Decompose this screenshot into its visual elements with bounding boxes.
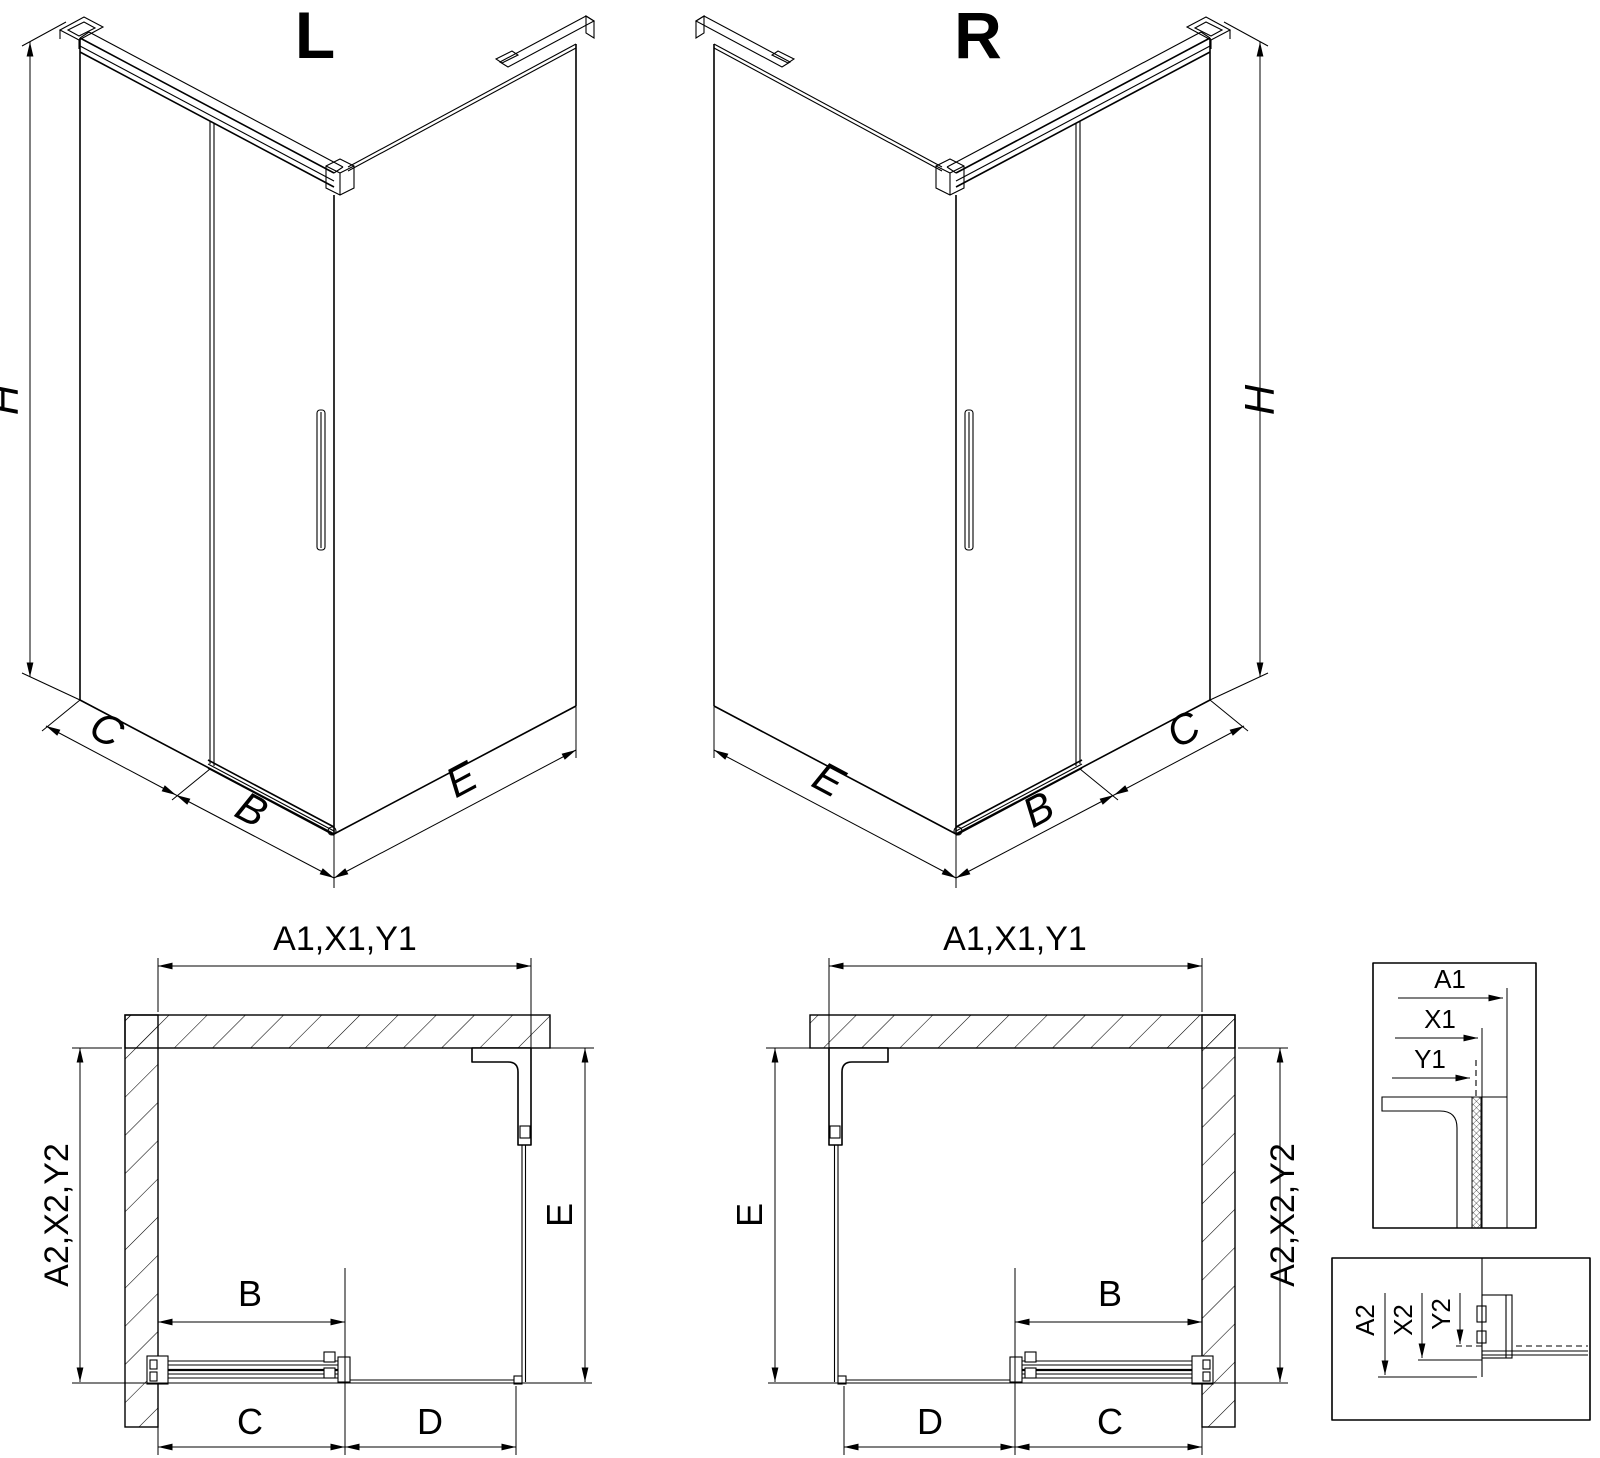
detail-label-y2: Y2: [1426, 1298, 1456, 1330]
dim-label-c: C: [1097, 1401, 1123, 1442]
dim-label-a1x1y1: A1,X1,Y1: [943, 920, 1087, 958]
iso-left-dim-e: E: [334, 706, 576, 878]
iso-view-left: L H: [0, 0, 594, 888]
plan-view-left: A1,X1,Y1 A2,X2,Y2 E B C D: [38, 920, 594, 1455]
glass-walls-left-view: [80, 44, 576, 834]
dim-label-e: E: [805, 752, 853, 807]
detail-view-top: A1 X1 Y1: [1373, 963, 1536, 1228]
dim-label-b: B: [1015, 782, 1062, 837]
plan-right-dim-e: E: [729, 1048, 826, 1382]
plan-left-dim-e: E: [534, 1048, 594, 1382]
glass-section: [1472, 1097, 1481, 1228]
iso-left-dim-b: B: [176, 782, 334, 888]
wall-bracket-right: [496, 16, 594, 67]
dim-label-c: C: [237, 1401, 263, 1442]
dim-label-d: D: [417, 1401, 443, 1442]
door-rail-assembly: [72, 1352, 592, 1384]
dim-label-h: H: [0, 384, 27, 415]
glass-walls-right-view: [714, 44, 1210, 834]
detail-view-bottom: A2 X2 Y2: [1332, 1258, 1590, 1420]
corner-cap: [936, 159, 964, 195]
plan-left-dim-a2: A2,X2,Y2: [38, 1048, 122, 1382]
detail-label-x1: X1: [1424, 1004, 1456, 1034]
dim-label-b: B: [1098, 1273, 1122, 1314]
dim-label-b: B: [228, 782, 275, 837]
door-handle: [317, 410, 325, 550]
corner-cap: [326, 159, 354, 195]
technical-drawing: L H: [0, 0, 1600, 1458]
plan-right-dim-a2: A2,X2,Y2: [1238, 1048, 1302, 1382]
iso-left-title: L: [295, 0, 335, 72]
iso-right-dim-e: E: [714, 706, 956, 878]
dim-label-b: B: [238, 1273, 262, 1314]
dim-label-a1x1y1: A1,X1,Y1: [273, 920, 417, 958]
wall-top: [810, 1015, 1235, 1048]
door-rail-assembly: [768, 1352, 1288, 1384]
wall-bracket-left: [696, 16, 794, 67]
corner-profile: [829, 1048, 888, 1382]
wall-bracket-left: [60, 17, 103, 49]
door-handle: [965, 410, 973, 550]
dim-label-d: D: [917, 1401, 943, 1442]
plan-view-right: A1,X1,Y1 A2,X2,Y2 E B D C: [729, 920, 1302, 1455]
dim-label-a2x2y2: A2,X2,Y2: [38, 1143, 76, 1287]
corner-profile: [472, 1048, 531, 1382]
dim-label-e: E: [729, 1203, 770, 1227]
detail-label-y1: Y1: [1414, 1044, 1446, 1074]
iso-left-dim-height: H: [0, 22, 80, 700]
detail-label-a1: A1: [1434, 964, 1466, 994]
plan-right-dim-dc: D C: [844, 1386, 1202, 1455]
dim-label-h: H: [1236, 384, 1283, 415]
detail-label-a2: A2: [1350, 1304, 1380, 1336]
iso-right-dim-height: H: [1210, 22, 1283, 700]
wall-bracket-right: [1187, 17, 1230, 49]
iso-right-title: R: [954, 0, 1002, 72]
iso-left-dim-c: C: [42, 700, 210, 800]
dim-label-a2x2y2: A2,X2,Y2: [1264, 1143, 1302, 1287]
plan-left-dim-cd: C D: [158, 1386, 516, 1455]
iso-right-dim-b: B: [956, 782, 1114, 888]
dim-label-e: E: [438, 751, 486, 806]
profile-section: [1477, 1295, 1588, 1358]
iso-view-right: R H: [696, 0, 1283, 888]
dim-label-e: E: [539, 1203, 580, 1227]
drawing-page: L H: [0, 0, 1600, 1458]
detail-label-x2: X2: [1388, 1304, 1418, 1336]
profile-section: [1382, 1097, 1507, 1228]
wall-top: [125, 1015, 550, 1048]
iso-right-dim-c: C: [1080, 700, 1248, 800]
